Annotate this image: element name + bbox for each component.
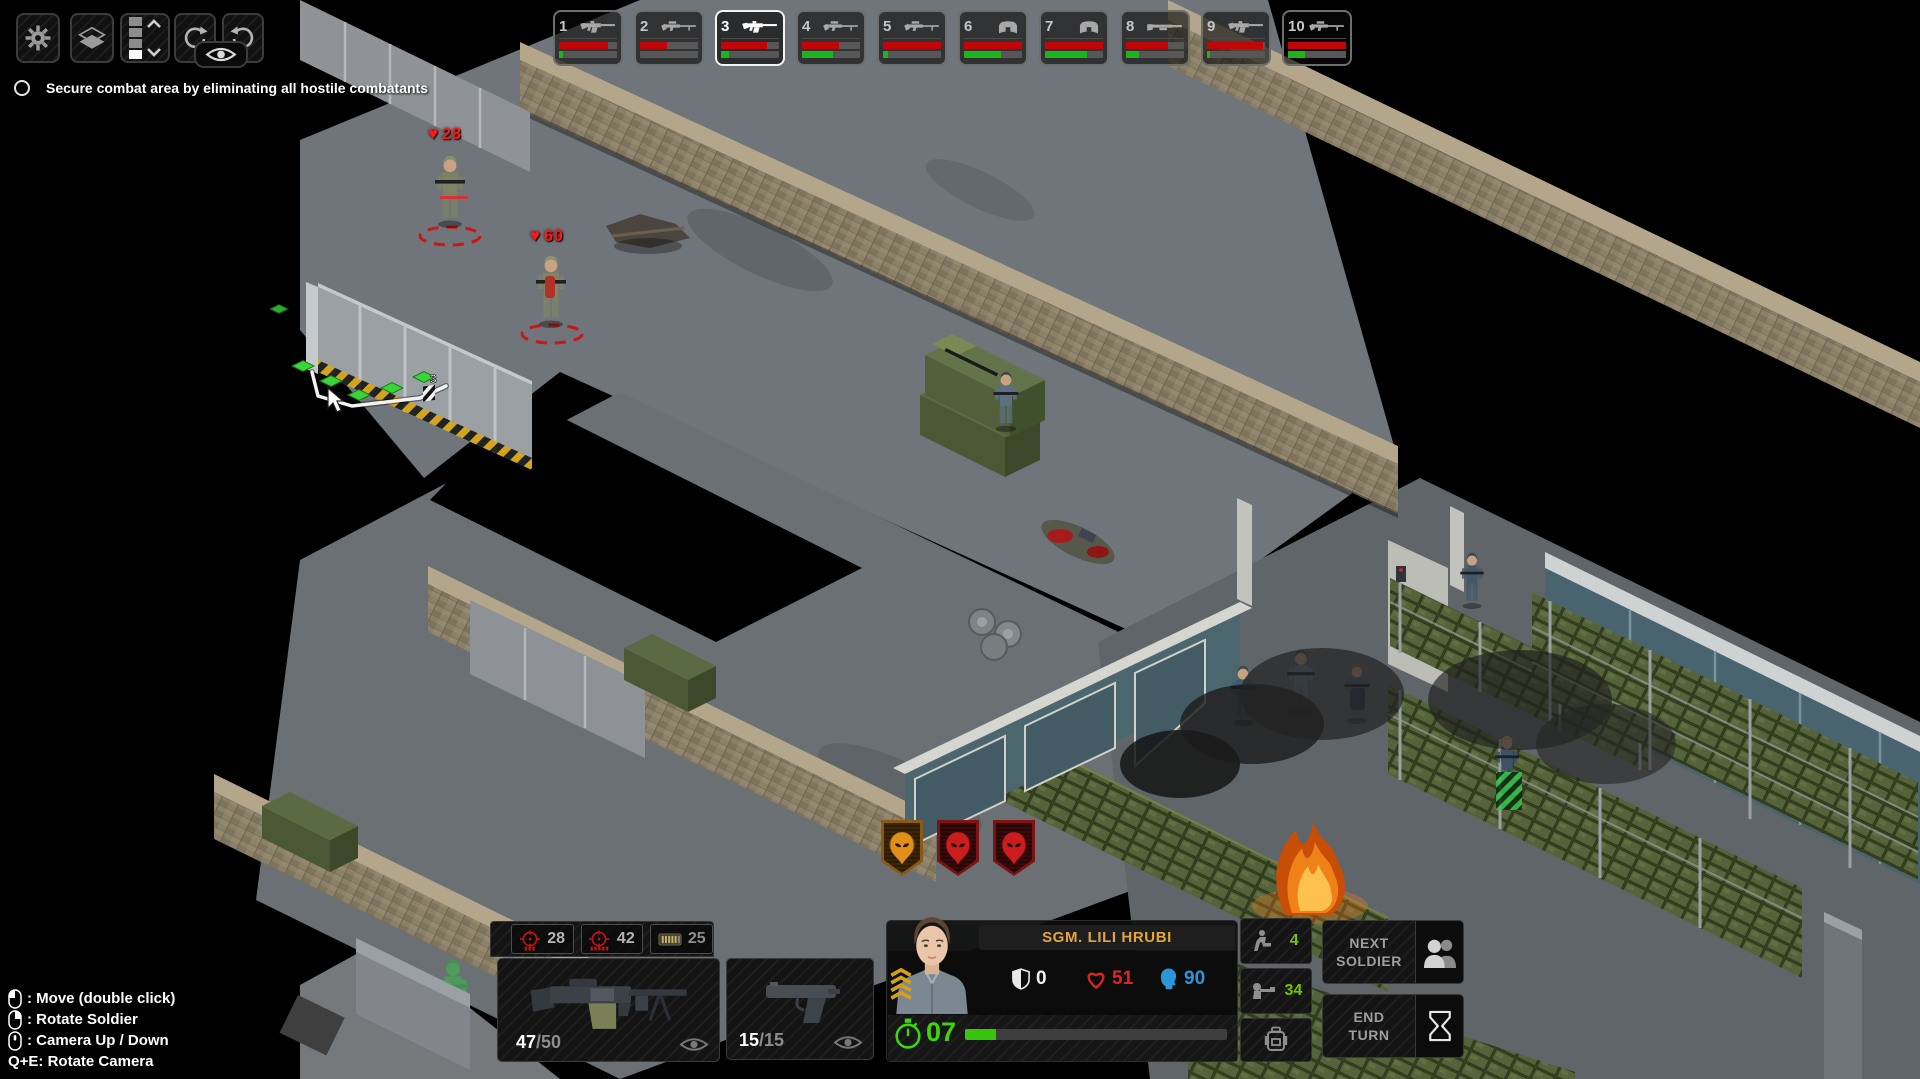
squad-slot-2[interactable]: 2 bbox=[634, 10, 704, 66]
objective-text: Secure combat area by eliminating all ho… bbox=[46, 80, 428, 96]
tu-bar bbox=[1126, 51, 1184, 58]
shotgun-icon bbox=[1146, 19, 1184, 34]
secondary-weapon-card[interactable]: 15/15 bbox=[726, 958, 874, 1060]
hazard-stripe bbox=[492, 923, 502, 955]
mission-objective: Secure combat area by eliminating all ho… bbox=[14, 80, 428, 96]
level-selector[interactable] bbox=[120, 13, 170, 63]
squad-slot-3-selected[interactable]: 3 bbox=[715, 10, 785, 66]
time-units-row: 07 bbox=[888, 1015, 1237, 1061]
squad-slot-9[interactable]: 9 bbox=[1201, 10, 1271, 66]
morale-icon bbox=[1158, 967, 1179, 991]
assault-rifle-icon bbox=[1227, 19, 1265, 34]
inventory-button[interactable] bbox=[1240, 1018, 1312, 1062]
sniper-rifle-icon bbox=[903, 19, 941, 34]
rank-chevrons-icon bbox=[888, 966, 914, 1002]
health-icon bbox=[1084, 969, 1108, 990]
squad-slot-6[interactable]: 6 bbox=[958, 10, 1028, 66]
fire-mode-strip: 28 42 25 bbox=[490, 921, 714, 957]
hazard-stripe bbox=[500, 961, 511, 1059]
backpack-icon bbox=[1264, 1026, 1288, 1054]
stopwatch-icon bbox=[894, 1018, 922, 1050]
hp-bar bbox=[1045, 42, 1103, 49]
hp-bar bbox=[1126, 42, 1184, 49]
toggle-vision-button[interactable] bbox=[194, 41, 248, 68]
primary-ammo-count: 47/50 bbox=[516, 1032, 561, 1053]
enemy-health-label: ♥60 bbox=[530, 226, 564, 246]
tu-bar bbox=[1207, 51, 1265, 58]
squad-slot-7[interactable]: 7 bbox=[1039, 10, 1109, 66]
enemy-health-label: ♥28 bbox=[428, 124, 462, 144]
riot-shield-icon bbox=[1075, 18, 1103, 35]
mouse-left-icon bbox=[8, 989, 22, 1009]
tu-bar bbox=[802, 51, 860, 58]
reticle-burst-icon bbox=[520, 927, 540, 951]
smg-icon bbox=[579, 19, 617, 34]
level-indicator bbox=[129, 17, 142, 59]
tu-bar bbox=[1045, 51, 1103, 58]
kneel-icon bbox=[1253, 929, 1277, 953]
tu-bar bbox=[964, 51, 1022, 58]
game-screen: { "hud": { "toolbar": { "buttons": [ {"i… bbox=[0, 0, 1920, 1079]
time-units-value: 07 bbox=[926, 1017, 956, 1048]
primary-weapon-card[interactable]: 47/50 bbox=[497, 958, 720, 1062]
cursor-icon bbox=[328, 388, 343, 412]
right-pillar bbox=[1824, 912, 1862, 1079]
hp-bar bbox=[1288, 42, 1346, 49]
heart-icon: ♥ bbox=[530, 226, 541, 245]
reaction-fire[interactable]: 34 bbox=[1240, 968, 1312, 1014]
reticle-auto-icon bbox=[589, 927, 609, 951]
squad-slot-8[interactable]: 8 bbox=[1120, 10, 1190, 66]
hp-bar bbox=[883, 42, 941, 49]
hp-bar bbox=[1207, 42, 1265, 49]
sniper-rifle-icon bbox=[822, 19, 860, 34]
alien-head-icon bbox=[1001, 830, 1027, 866]
control-hints: : Move (double click) : Rotate Soldier :… bbox=[8, 988, 175, 1072]
heart-icon: ♥ bbox=[428, 124, 439, 143]
hp-bar bbox=[640, 42, 698, 49]
hp-bar bbox=[964, 42, 1022, 49]
ammo-reserve[interactable]: 25 bbox=[650, 924, 713, 954]
hp-bar bbox=[721, 42, 779, 49]
objective-status-icon bbox=[14, 80, 30, 96]
layers-icon bbox=[78, 26, 106, 50]
sniper-rifle-icon bbox=[1308, 19, 1346, 34]
sniper-rifle-icon bbox=[660, 19, 698, 34]
svg-text:3: 3 bbox=[430, 372, 437, 386]
chevron-down-icon[interactable] bbox=[146, 47, 162, 57]
reaction-fire-cost: 34 bbox=[1284, 982, 1302, 1000]
reaction-fire-icon bbox=[1250, 980, 1276, 1002]
armor-value: 0 bbox=[1036, 968, 1047, 990]
assault-rifle-icon bbox=[741, 19, 779, 34]
kneel-cost: 4 bbox=[1290, 932, 1299, 950]
eye-icon bbox=[205, 46, 237, 63]
tu-bar bbox=[1288, 51, 1346, 58]
squad-slot-5[interactable]: 5 bbox=[877, 10, 947, 66]
settings-button[interactable] bbox=[16, 13, 60, 63]
alien-head-icon bbox=[889, 830, 915, 866]
squad-slot-10[interactable]: 10 bbox=[1282, 10, 1352, 66]
secondary-ammo-count: 15/15 bbox=[739, 1030, 784, 1051]
riot-shield-icon bbox=[994, 18, 1022, 35]
mouse-right-icon bbox=[8, 1010, 22, 1030]
soldier-name: SGM. LILI HRUBI bbox=[979, 925, 1235, 950]
tu-bar bbox=[640, 51, 698, 58]
fire-mode-burst[interactable]: 28 bbox=[511, 924, 574, 954]
squad-slot-4[interactable]: 4 bbox=[796, 10, 866, 66]
pistol-image bbox=[757, 969, 849, 1029]
armor-icon bbox=[1012, 968, 1030, 990]
fire-mode-auto[interactable]: 42 bbox=[581, 924, 644, 954]
tu-bar bbox=[721, 51, 779, 58]
chevron-up-icon[interactable] bbox=[146, 19, 162, 29]
hp-bar bbox=[559, 42, 617, 49]
end-turn-button[interactable]: ENDTURN bbox=[1322, 994, 1464, 1058]
mouse-middle-icon bbox=[8, 1031, 22, 1051]
morale-value: 90 bbox=[1184, 968, 1205, 990]
squad-slot-1[interactable]: 1 bbox=[553, 10, 623, 66]
tu-bar bbox=[559, 51, 617, 58]
time-units-bar bbox=[965, 1029, 1227, 1040]
cover-indicator bbox=[1496, 772, 1522, 810]
level-view-button[interactable] bbox=[70, 13, 114, 63]
tu-bar bbox=[883, 51, 941, 58]
soldiers-icon bbox=[1421, 936, 1459, 968]
eye-icon[interactable] bbox=[833, 1034, 863, 1051]
ammo-clip-icon bbox=[658, 931, 682, 948]
next-soldier-button[interactable]: NEXTSOLDIER bbox=[1322, 920, 1464, 984]
gear-icon bbox=[25, 25, 51, 51]
hp-bar bbox=[802, 42, 860, 49]
alien-head-icon bbox=[945, 830, 971, 866]
health-value: 51 bbox=[1112, 968, 1133, 990]
eye-icon[interactable] bbox=[679, 1036, 709, 1053]
kneel-toggle[interactable]: 4 bbox=[1240, 918, 1312, 964]
hourglass-icon bbox=[1427, 1009, 1453, 1043]
machine-gun-image bbox=[524, 967, 704, 1031]
key-combo: Q+E: Rotate Camera bbox=[8, 1053, 153, 1070]
